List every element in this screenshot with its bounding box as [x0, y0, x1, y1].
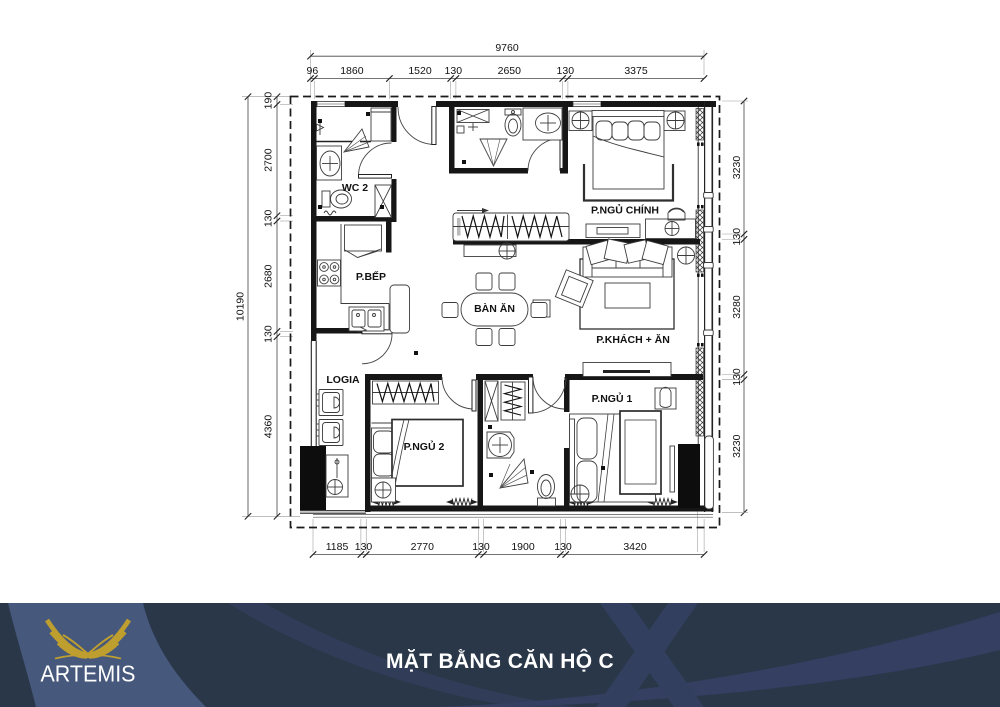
svg-text:BÀN ĂN: BÀN ĂN [474, 302, 515, 315]
svg-text:2680: 2680 [262, 264, 274, 288]
svg-text:9760: 9760 [495, 42, 519, 54]
svg-text:2770: 2770 [411, 541, 435, 553]
svg-text:130: 130 [262, 325, 274, 343]
svg-text:130: 130 [731, 228, 743, 246]
svg-text:P.NGỦ CHÍNH: P.NGỦ CHÍNH [591, 204, 659, 217]
svg-text:130: 130 [557, 65, 575, 77]
svg-text:3420: 3420 [623, 541, 647, 553]
svg-text:3280: 3280 [731, 295, 743, 319]
svg-text:130: 130 [472, 541, 490, 553]
svg-text:4360: 4360 [262, 415, 274, 439]
svg-text:96: 96 [307, 65, 319, 77]
svg-text:P.BẾP: P.BẾP [356, 270, 386, 283]
svg-text:1185: 1185 [326, 541, 349, 553]
svg-text:ARTEMIS: ARTEMIS [41, 661, 136, 687]
svg-text:1520: 1520 [408, 65, 432, 77]
svg-text:130: 130 [355, 541, 373, 553]
svg-text:WC 2: WC 2 [342, 182, 368, 194]
svg-text:2650: 2650 [498, 65, 522, 77]
svg-text:P.NGỦ 2: P.NGỦ 2 [404, 440, 445, 453]
svg-text:P.NGỦ 1: P.NGỦ 1 [592, 392, 633, 405]
svg-text:LOGIA: LOGIA [326, 374, 360, 386]
svg-text:3375: 3375 [624, 65, 648, 77]
svg-text:3230: 3230 [731, 434, 743, 458]
svg-text:MẶT BẰNG CĂN HỘ C: MẶT BẰNG CĂN HỘ C [386, 649, 614, 673]
svg-text:2700: 2700 [262, 148, 274, 172]
svg-text:130: 130 [262, 209, 274, 227]
svg-text:130: 130 [731, 368, 743, 386]
svg-text:130: 130 [445, 65, 463, 77]
svg-text:1900: 1900 [511, 541, 535, 553]
svg-text:P.KHÁCH + ĂN: P.KHÁCH + ĂN [596, 333, 670, 346]
svg-text:1860: 1860 [340, 65, 364, 77]
svg-text:190: 190 [262, 92, 274, 110]
svg-text:130: 130 [554, 541, 572, 553]
svg-text:3230: 3230 [731, 156, 743, 180]
svg-text:10190: 10190 [235, 292, 247, 321]
